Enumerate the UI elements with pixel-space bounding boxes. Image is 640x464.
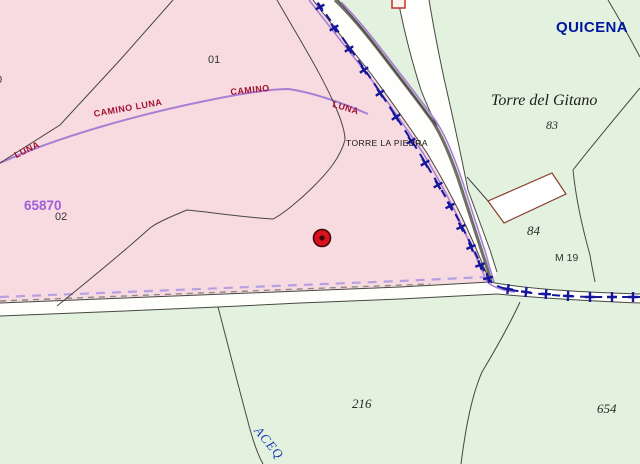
municipality-label: QUICENA — [556, 20, 628, 35]
building-outline-top-icon — [392, 0, 405, 8]
partial-parcel-number: 0 — [0, 75, 2, 86]
place-torre-la-piedra-label: TORRE LA PIEDRA — [346, 139, 428, 148]
subparcel-number-02: 02 — [55, 212, 67, 223]
parcel-number-216: 216 — [352, 397, 372, 410]
location-marker-icon[interactable] — [314, 230, 331, 247]
parcel-number-83: 83 — [546, 119, 558, 131]
boundary-marker-m19-label: M 19 — [555, 253, 578, 264]
parcel-code-65870: 65870 — [24, 199, 62, 213]
parcel-number-654: 654 — [597, 402, 617, 415]
parcel-number-84: 84 — [527, 224, 540, 237]
cadastral-map-canvas[interactable]: QUICENA Torre del Gitano 83 84 M 19 216 … — [0, 0, 640, 464]
place-name-label: Torre del Gitano — [491, 93, 597, 109]
subparcel-number-01: 01 — [208, 55, 220, 66]
map-graphics — [0, 0, 640, 464]
